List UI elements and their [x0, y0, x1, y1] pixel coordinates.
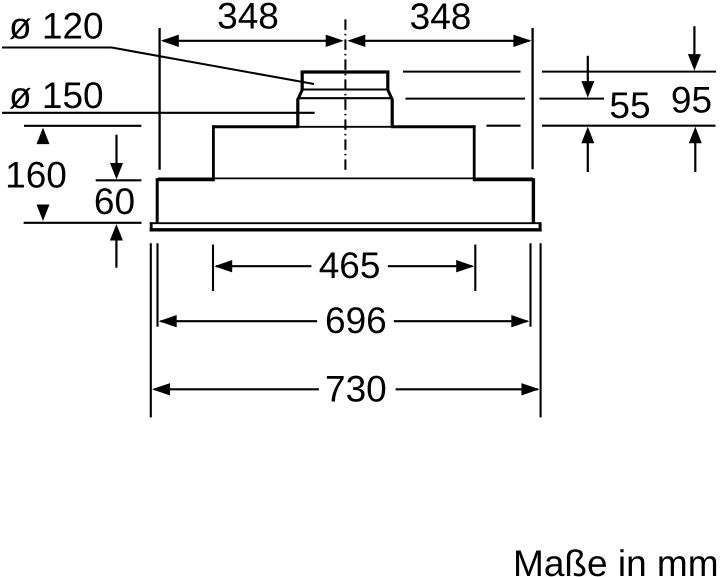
svg-text:465: 465 — [319, 245, 381, 286]
svg-text:160: 160 — [5, 155, 67, 196]
svg-text:696: 696 — [325, 300, 387, 341]
svg-text:95: 95 — [671, 80, 712, 121]
svg-text:348: 348 — [410, 0, 472, 37]
svg-text:55: 55 — [609, 85, 650, 126]
svg-text:730: 730 — [325, 369, 387, 410]
svg-text:Maße in mm: Maße in mm — [513, 543, 719, 577]
svg-text:348: 348 — [217, 0, 279, 37]
svg-text:ø 150: ø 150 — [9, 75, 104, 116]
svg-text:ø 120: ø 120 — [9, 6, 104, 47]
svg-text:60: 60 — [94, 181, 135, 222]
